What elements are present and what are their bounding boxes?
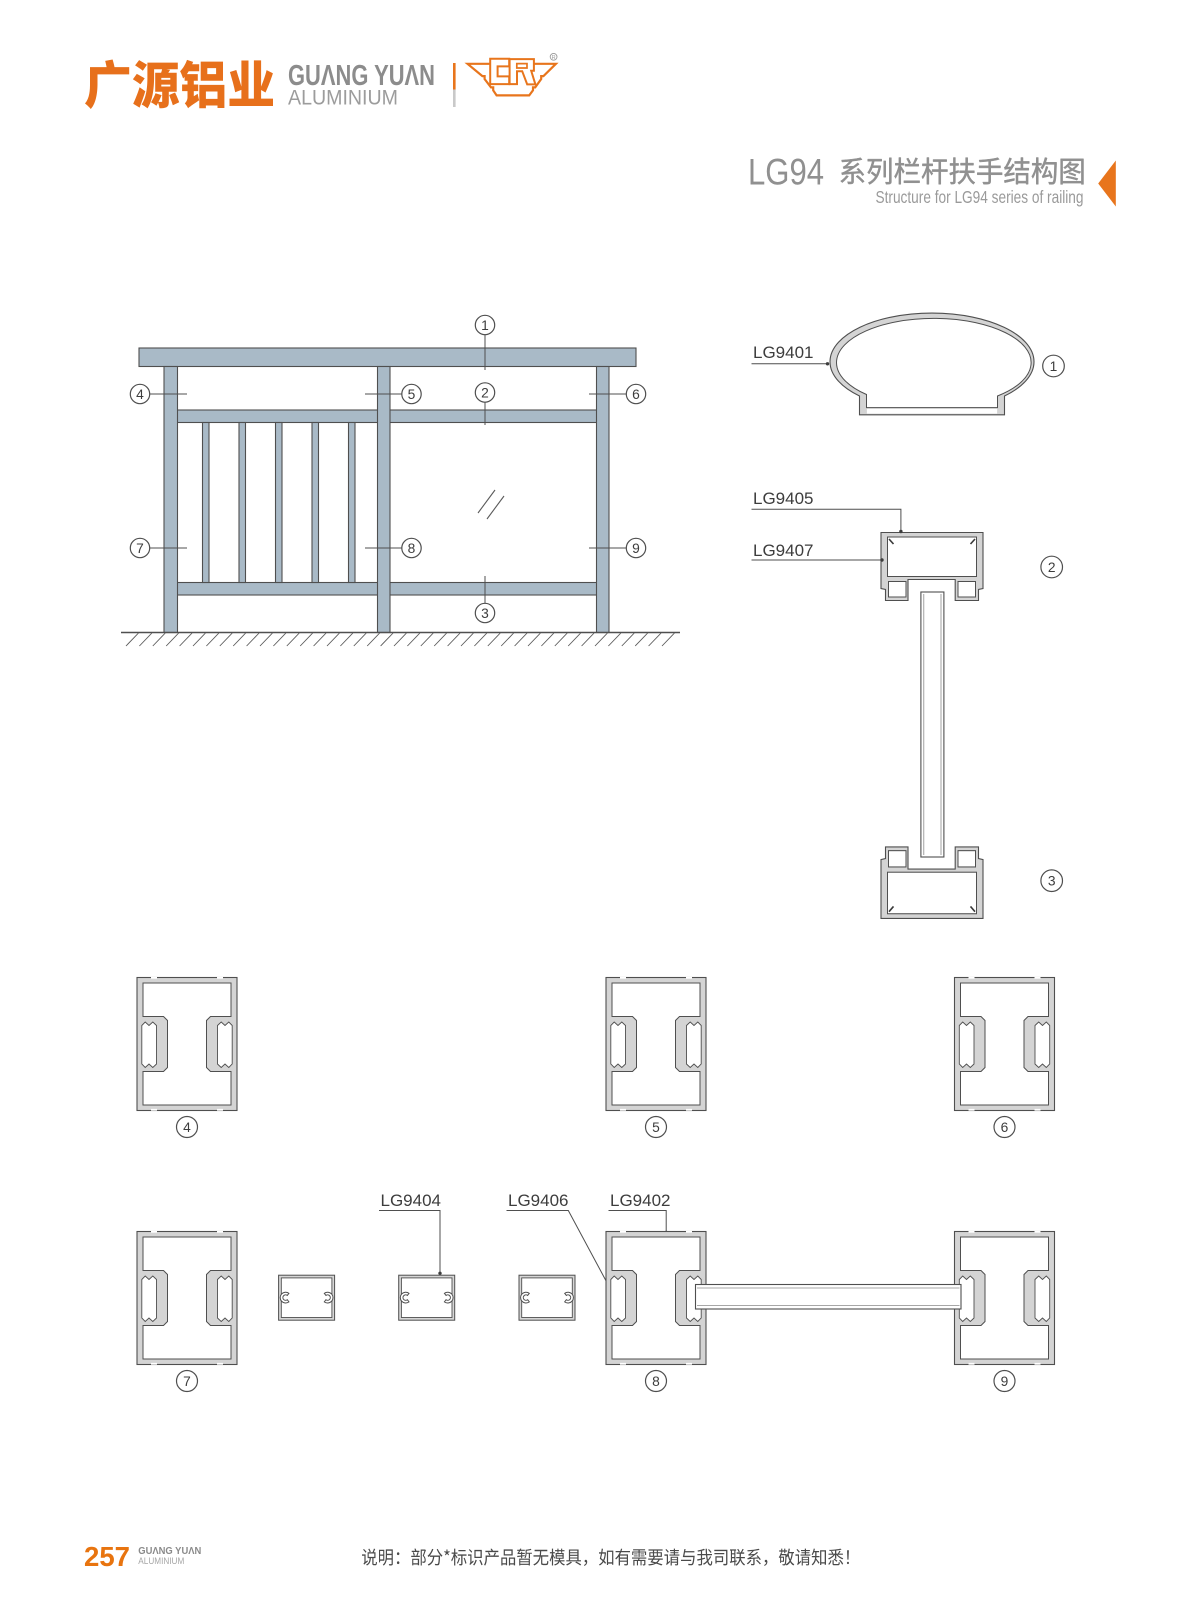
svg-text:3: 3 bbox=[481, 606, 489, 621]
svg-text:Structure for LG94 series of r: Structure for LG94 series of railing bbox=[876, 187, 1084, 207]
svg-text:5: 5 bbox=[408, 387, 416, 402]
svg-text:LG9401: LG9401 bbox=[753, 343, 814, 362]
svg-text:6: 6 bbox=[632, 387, 640, 402]
svg-text:4: 4 bbox=[183, 1120, 191, 1135]
svg-text:5: 5 bbox=[652, 1120, 660, 1135]
svg-text:LG9406: LG9406 bbox=[508, 1191, 569, 1210]
svg-text:4: 4 bbox=[136, 387, 144, 402]
svg-text:LG9405: LG9405 bbox=[753, 489, 814, 508]
svg-text:LG94: LG94 bbox=[748, 152, 824, 193]
svg-text:ALUMINIUM: ALUMINIUM bbox=[138, 1556, 184, 1567]
svg-text:1: 1 bbox=[481, 318, 489, 333]
svg-text:6: 6 bbox=[1001, 1120, 1009, 1135]
svg-text:8: 8 bbox=[652, 1374, 660, 1389]
svg-text:257: 257 bbox=[84, 1541, 130, 1572]
svg-text:7: 7 bbox=[183, 1374, 191, 1389]
svg-text:3: 3 bbox=[1048, 874, 1056, 889]
svg-text:LG9402: LG9402 bbox=[610, 1191, 671, 1210]
svg-text:8: 8 bbox=[408, 541, 416, 556]
svg-text:R: R bbox=[552, 55, 556, 61]
svg-text:LG9407: LG9407 bbox=[753, 541, 814, 560]
svg-text:9: 9 bbox=[1001, 1374, 1009, 1389]
svg-text:2: 2 bbox=[1048, 560, 1056, 575]
svg-text:7: 7 bbox=[136, 541, 144, 556]
svg-text:ALUMINIUM: ALUMINIUM bbox=[288, 86, 398, 110]
svg-text:LG9404: LG9404 bbox=[381, 1191, 442, 1210]
svg-text:1: 1 bbox=[1050, 359, 1058, 374]
svg-text:9: 9 bbox=[632, 541, 640, 556]
svg-text:2: 2 bbox=[481, 385, 489, 400]
